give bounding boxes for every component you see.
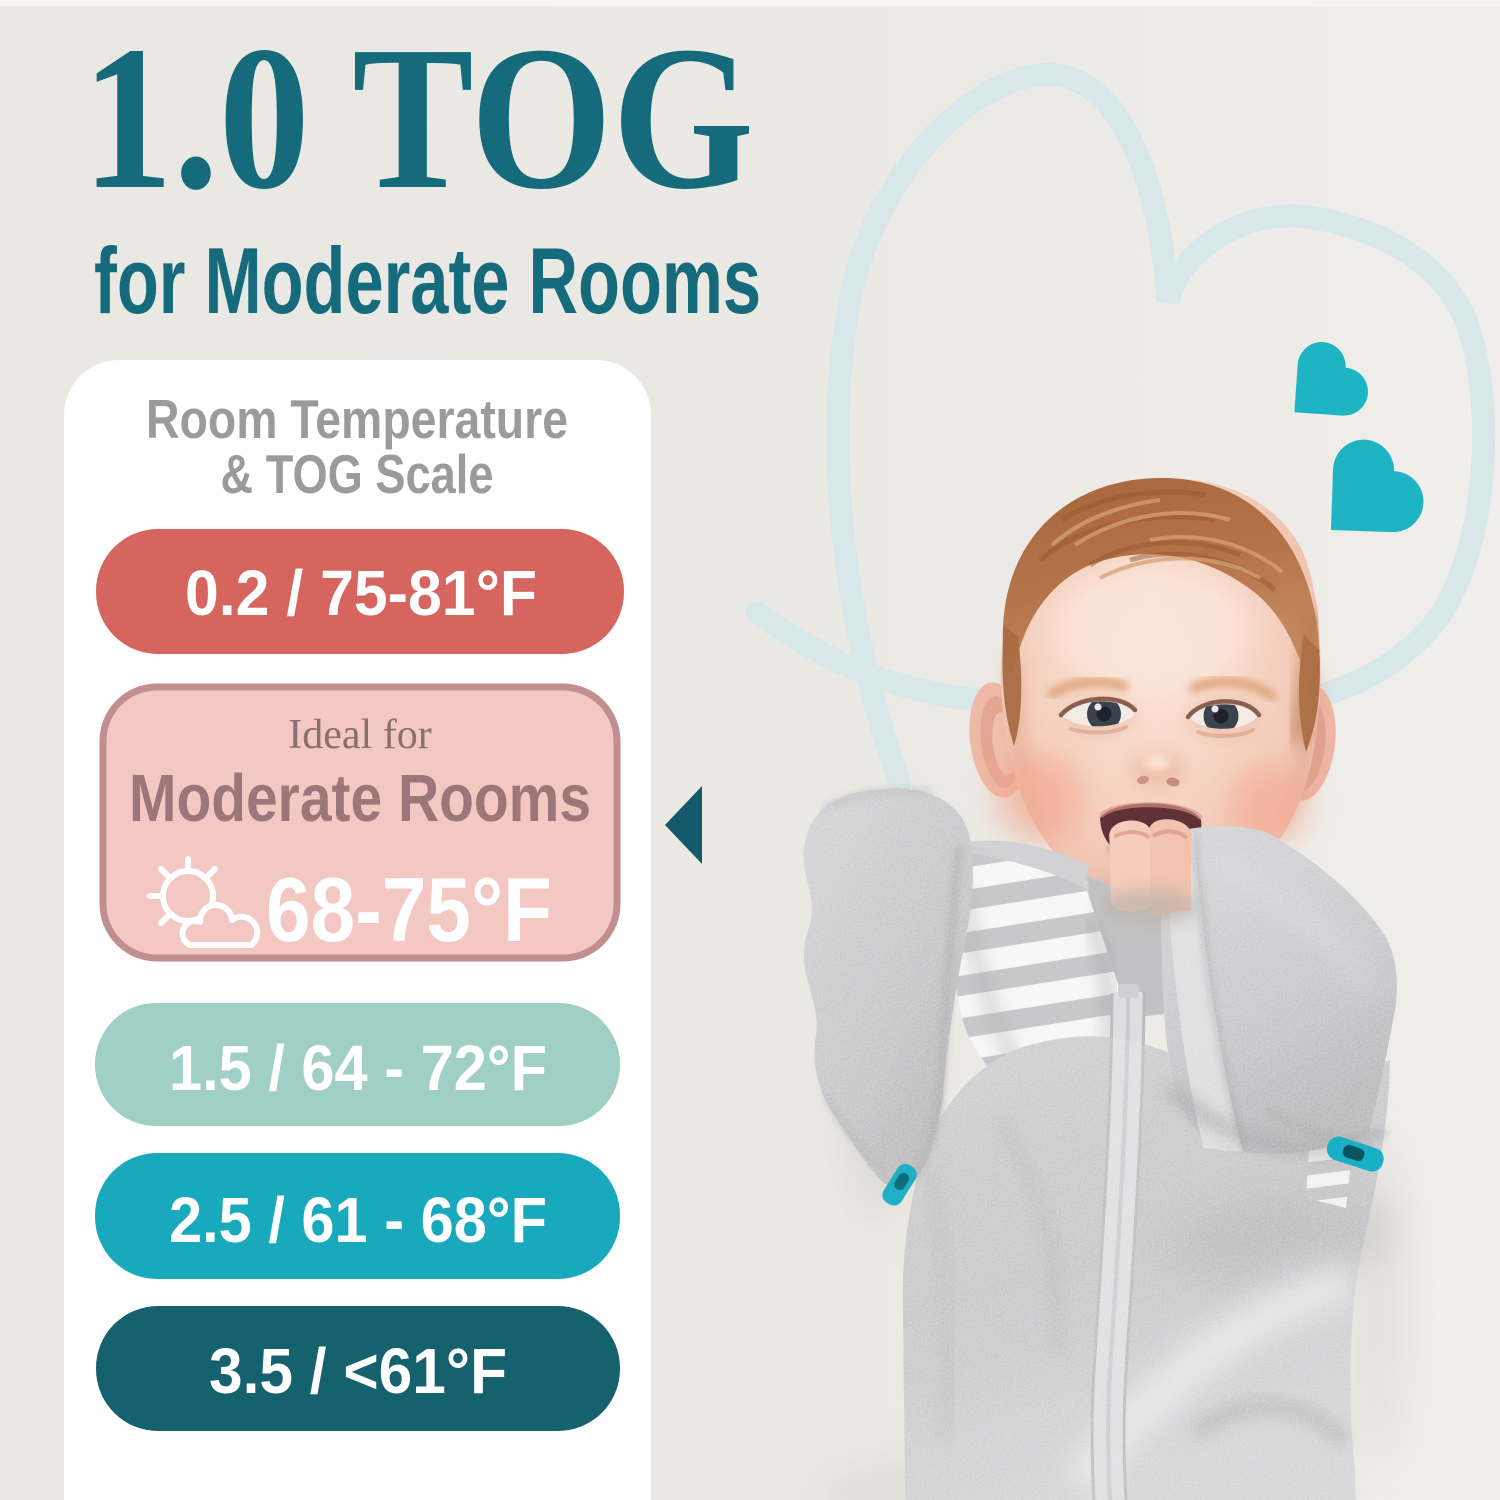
- svg-text:& TOG Scale: & TOG Scale: [221, 443, 494, 505]
- svg-text:1.5 / 64 - 72°F: 1.5 / 64 - 72°F: [169, 1032, 547, 1104]
- svg-text:3.5 / <61°F: 3.5 / <61°F: [209, 1335, 507, 1407]
- svg-text:1.0 TOG: 1.0 TOG: [82, 3, 754, 232]
- svg-text:Room Temperature: Room Temperature: [146, 388, 568, 450]
- svg-text:68-75°F: 68-75°F: [266, 860, 552, 961]
- svg-text:Moderate Rooms: Moderate Rooms: [129, 761, 591, 836]
- svg-text:2.5 / 61 - 68°F: 2.5 / 61 - 68°F: [169, 1184, 547, 1256]
- svg-text:Ideal for: Ideal for: [288, 712, 431, 758]
- svg-text:0.2 / 75-81°F: 0.2 / 75-81°F: [185, 557, 537, 629]
- svg-text:for Moderate Rooms: for Moderate Rooms: [94, 228, 761, 333]
